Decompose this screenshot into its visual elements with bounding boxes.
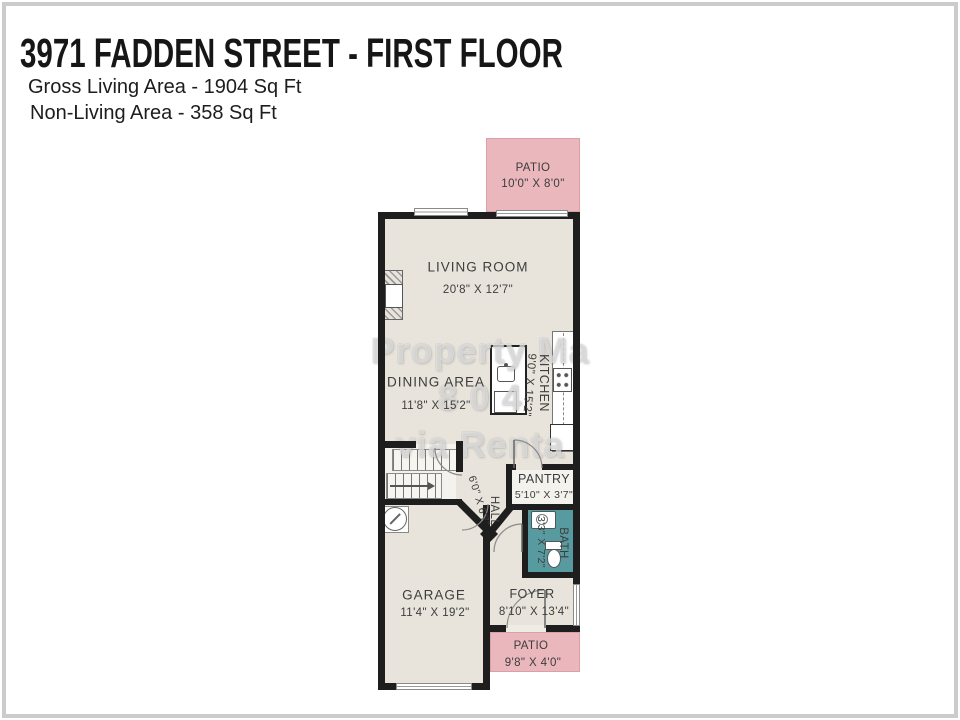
gross-living-area-text: Gross Living Area - 1904 Sq Ft — [28, 76, 301, 99]
stairs-upper-run — [392, 449, 458, 471]
patio-top-area — [486, 138, 580, 212]
refrigerator-icon — [550, 424, 574, 451]
label-pantry-dims: 5'10" X 3'7" — [515, 489, 573, 501]
label-patio-bottom-dims: 9'8" X 4'0" — [505, 657, 562, 669]
garage-door-icon — [396, 683, 472, 690]
foyer-window-icon — [573, 584, 580, 626]
wall — [378, 499, 462, 505]
label-living-room-name: LIVING ROOM — [427, 260, 528, 275]
wall — [542, 464, 580, 470]
label-garage-name: GARAGE — [402, 588, 466, 603]
wall — [483, 505, 490, 690]
wall — [378, 441, 416, 448]
wall — [573, 212, 580, 632]
sink-faucet-icon — [504, 363, 508, 367]
label-dining-area-dims: 11'8" X 15'2" — [401, 400, 470, 412]
stove-icon — [553, 368, 572, 392]
label-bath-name: BATH — [557, 527, 569, 558]
stairs-direction-arrow-icon — [428, 482, 435, 490]
non-living-area-text: Non-Living Area - 358 Sq Ft — [30, 102, 277, 125]
label-kitchen-name: KITCHEN — [537, 354, 551, 412]
page-title: 3971 FADDEN STREET - FIRST FLOOR — [20, 30, 563, 77]
island-appliance-icon — [494, 391, 517, 413]
label-bath-dims: 3'3" X 7'2" — [535, 516, 547, 568]
fireplace-firebox-icon — [385, 284, 403, 308]
label-patio-top-dims: 10'0" X 8'0" — [501, 178, 564, 190]
floor-plan-page: 3971 FADDEN STREET - FIRST FLOOR Gross L… — [0, 0, 960, 720]
label-pantry-name: PANTRY — [518, 472, 570, 486]
wall — [522, 510, 528, 578]
stairs-direction-line — [390, 485, 428, 487]
wall — [378, 212, 385, 690]
label-foyer-dims: 8'10" X 13'4" — [499, 606, 569, 618]
label-living-room-dims: 20'8" X 12'7" — [443, 284, 513, 296]
label-garage-dims: 11'4" X 19'2" — [400, 607, 469, 619]
wall — [506, 504, 580, 510]
label-dining-area-name: DINING AREA — [387, 375, 485, 390]
wall — [456, 441, 463, 472]
wall — [522, 572, 580, 578]
hall-foyer-opening — [490, 530, 522, 578]
label-patio-bottom-name: PATIO — [514, 640, 549, 652]
patio-slider-door-icon — [496, 210, 568, 217]
island-sink-icon — [497, 366, 515, 382]
living-room-window-icon — [414, 208, 468, 216]
label-foyer-name: FOYER — [509, 587, 554, 601]
label-patio-top-name: PATIO — [516, 162, 551, 174]
foyer-patio-opening — [506, 625, 546, 632]
